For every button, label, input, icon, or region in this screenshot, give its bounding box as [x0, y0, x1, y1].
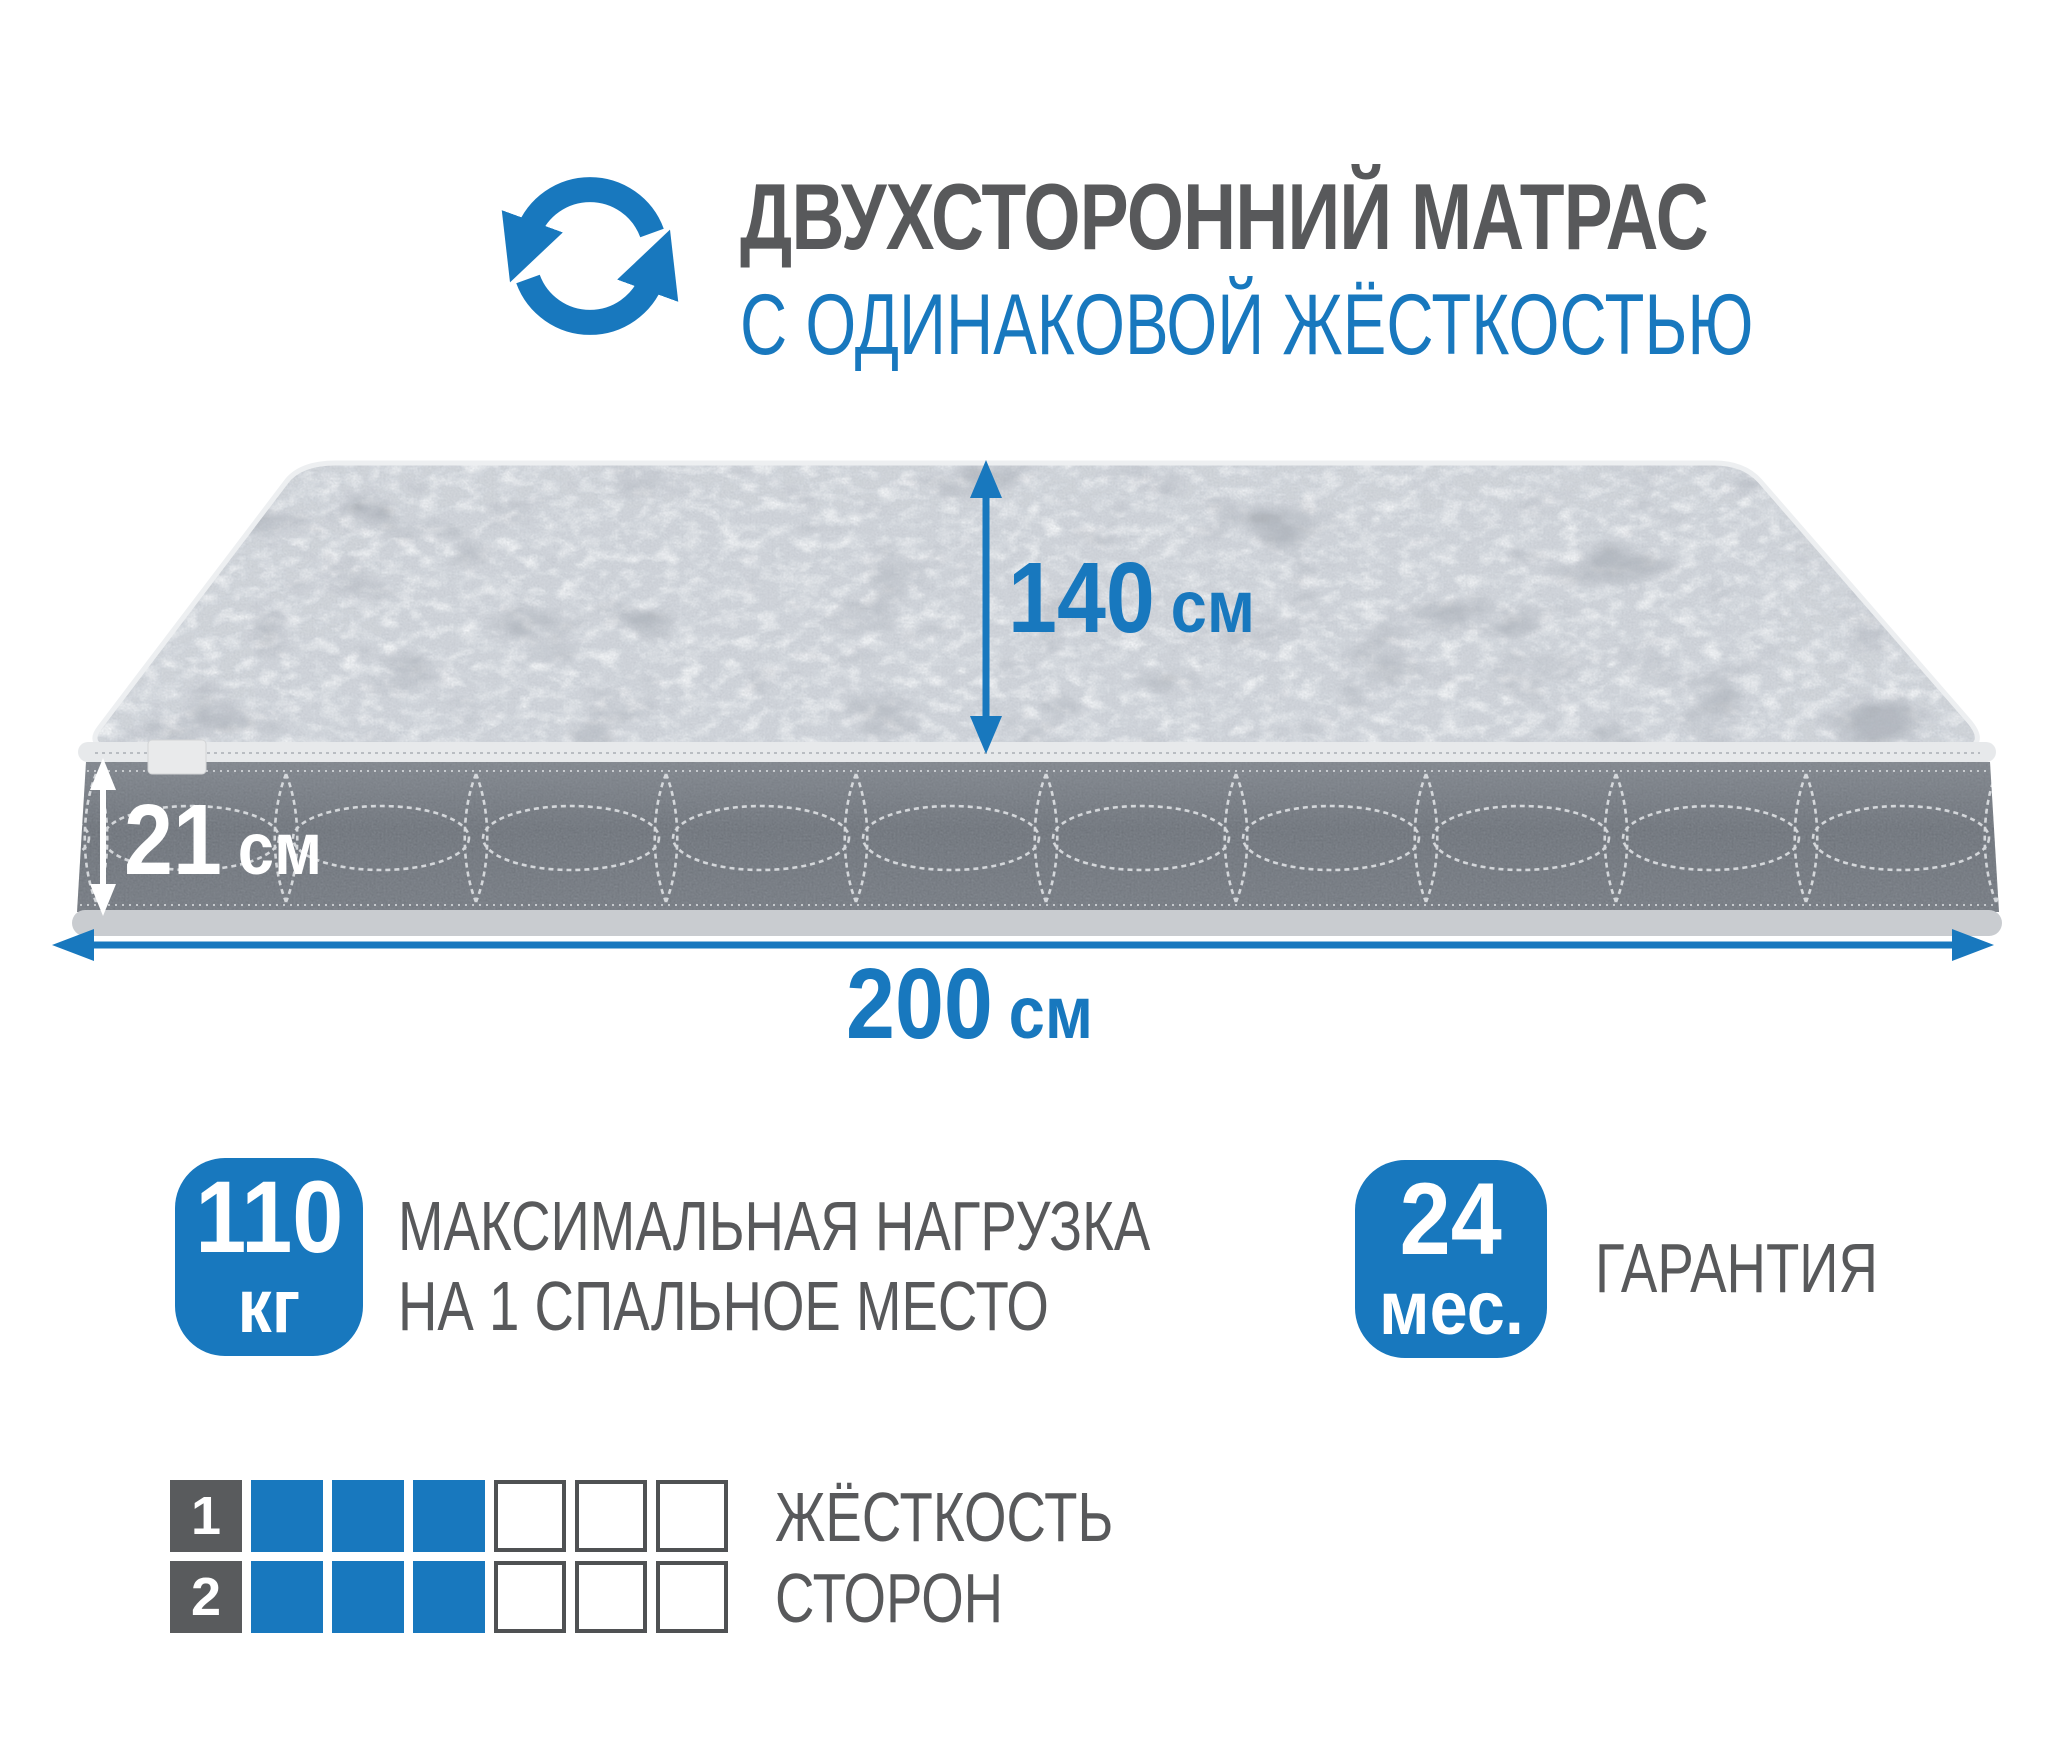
firmness-grid: 12 — [170, 1480, 728, 1633]
warranty-caption: ГАРАНТИЯ — [1595, 1228, 1878, 1308]
firmness-cell — [251, 1561, 323, 1633]
firmness-caption-line2: СТОРОН — [775, 1558, 1003, 1638]
width-value: 140 — [1008, 548, 1155, 648]
max-load-unit: кг — [238, 1269, 301, 1345]
firmness-cell — [413, 1480, 485, 1552]
thickness-value: 21 — [124, 790, 222, 890]
width-dimension-label: 140 см — [1008, 548, 1255, 648]
firmness-row: 2 — [170, 1561, 728, 1633]
length-unit: см — [1009, 976, 1093, 1050]
warranty-badge: 24 мес. — [1355, 1160, 1547, 1358]
max-load-value: 110 — [195, 1169, 343, 1266]
length-value: 200 — [846, 954, 993, 1054]
firmness-cell — [494, 1561, 566, 1633]
mattress-label-tag — [148, 740, 206, 774]
mattress-side — [70, 755, 2005, 920]
firmness-row-label: 2 — [170, 1561, 242, 1633]
firmness-cell — [413, 1561, 485, 1633]
mattress-bottom-piping — [72, 910, 2002, 936]
firmness-cell — [251, 1480, 323, 1552]
max-load-caption: МАКСИМАЛЬНАЯ НАГРУЗКА НА 1 СПАЛЬНОЕ МЕСТ… — [398, 1186, 1150, 1346]
firmness-caption-line1: ЖЁСТКОСТЬ — [775, 1477, 1113, 1557]
firmness-row-label: 1 — [170, 1480, 242, 1552]
firmness-cell — [575, 1561, 647, 1633]
warranty-unit: мес. — [1379, 1271, 1524, 1347]
mattress — [60, 450, 2010, 936]
mattress-infographic: ДВУХСТОРОННИЙ МАТРАС С ОДИНАКОВОЙ ЖЁСТКО… — [0, 0, 2048, 1757]
max-load-badge: 110 кг — [175, 1158, 363, 1356]
firmness-cell — [575, 1480, 647, 1552]
thickness-unit: см — [238, 812, 322, 886]
thickness-dimension-label: 21 см — [124, 790, 322, 890]
firmness-cell — [656, 1480, 728, 1552]
firmness-cell — [656, 1561, 728, 1633]
firmness-cell — [332, 1561, 404, 1633]
firmness-cell — [494, 1480, 566, 1552]
max-load-caption-line1: МАКСИМАЛЬНАЯ НАГРУЗКА — [398, 1186, 1150, 1266]
max-load-caption-line2: НА 1 СПАЛЬНОЕ МЕСТО — [398, 1266, 1150, 1346]
warranty-value: 24 — [1400, 1171, 1502, 1268]
firmness-cell — [332, 1480, 404, 1552]
length-dimension-label: 200 см — [846, 954, 1093, 1054]
mattress-front-piping — [78, 742, 1996, 762]
firmness-row: 1 — [170, 1480, 728, 1552]
width-unit: см — [1171, 570, 1255, 644]
